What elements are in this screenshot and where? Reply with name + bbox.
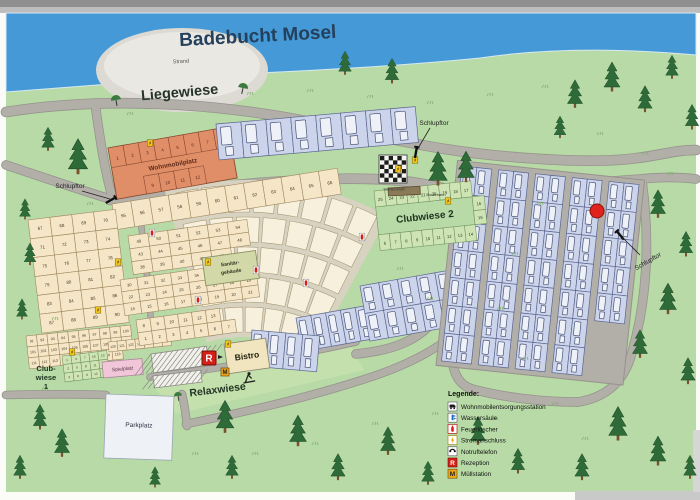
car-glyph <box>568 252 573 259</box>
fire-extinguisher-icon <box>303 279 309 287</box>
caravan-glyph <box>567 236 575 251</box>
car-glyph <box>275 142 283 151</box>
legend-item-label: Feuerlöscher <box>461 426 498 433</box>
car-glyph <box>547 250 552 257</box>
caravan-glyph <box>245 124 257 143</box>
pitch-number: 95 <box>71 335 75 339</box>
legend-waste-letter: M <box>450 471 455 478</box>
pitch-number: 104 <box>61 347 67 352</box>
caravan-glyph <box>530 232 538 247</box>
clubwiese1-label-line3: 1 <box>44 382 48 391</box>
pitch-number: 13 <box>101 353 105 357</box>
pitch-number: 113 <box>52 359 58 364</box>
caravan-glyph <box>270 335 279 354</box>
caravan-glyph <box>573 321 581 336</box>
caravan-glyph <box>537 318 545 333</box>
caravan-glyph <box>601 268 609 283</box>
car-glyph <box>523 332 528 339</box>
car-glyph <box>538 333 543 340</box>
caravan-glyph <box>485 312 493 327</box>
legend-item-label: Müllstation <box>461 471 492 478</box>
caravan-glyph <box>576 294 584 309</box>
outdoor-chessboard <box>379 155 407 183</box>
caravan-glyph <box>395 111 407 130</box>
caravan-glyph <box>482 340 490 355</box>
caravan-glyph <box>448 308 456 323</box>
car-glyph <box>520 360 525 367</box>
power-connection-icon <box>395 166 401 172</box>
car-glyph <box>388 299 395 307</box>
car-glyph <box>510 246 515 253</box>
waste-station-icon: M <box>448 469 457 478</box>
parkplatz-label: Parkplatz <box>125 422 152 430</box>
caravan-glyph <box>622 214 630 229</box>
legend-reception-letter: R <box>450 460 455 467</box>
car-glyph <box>271 356 277 365</box>
car-glyph <box>611 200 616 207</box>
caravan-glyph <box>511 202 519 217</box>
car-glyph <box>507 274 512 281</box>
car-glyph <box>250 144 258 153</box>
caravan-glyph <box>527 260 535 275</box>
fan-pitch-cell <box>259 248 281 275</box>
red-location-marker <box>590 204 604 218</box>
caravan-glyph <box>598 296 606 311</box>
fire-extinguisher-icon <box>359 233 365 241</box>
caravan-glyph <box>320 118 332 137</box>
pitch-number: 102 <box>40 349 46 354</box>
car-glyph <box>544 278 549 285</box>
scanned-campsite-map: 5556575859606162636465666768697071727374… <box>0 0 700 500</box>
legend-item: RRezeption <box>448 458 490 467</box>
car-glyph <box>495 244 500 251</box>
caravan-glyph <box>463 310 471 325</box>
car-glyph <box>501 330 506 337</box>
power-connection-icon <box>147 140 153 146</box>
pitch-number: 121 <box>119 344 125 349</box>
car-glyph <box>319 336 325 345</box>
pitch-number: 103 <box>51 348 57 353</box>
car-glyph <box>374 330 381 338</box>
caravan-glyph <box>579 266 587 281</box>
caravan-glyph <box>503 286 511 301</box>
caravan-glyph <box>454 253 462 268</box>
pitch-number: 92 <box>40 338 44 342</box>
fan-pitch-cell <box>245 307 263 333</box>
legend-item-label: Stromanschluss <box>461 438 506 445</box>
car-glyph <box>325 138 333 147</box>
car-glyph <box>577 309 582 316</box>
car-glyph <box>560 336 565 343</box>
caravan-glyph <box>500 314 508 329</box>
legend-item: Wohnmobilentsorgungsstation <box>448 402 546 411</box>
caravan-glyph <box>613 297 621 312</box>
car-glyph <box>425 292 432 300</box>
pitch-number: 93 <box>51 337 55 341</box>
caravan-glyph <box>548 206 556 221</box>
car-glyph <box>369 302 376 310</box>
caravan-glyph <box>525 288 533 303</box>
caravan-glyph <box>582 238 590 253</box>
legend-item: Stromanschluss <box>448 436 506 445</box>
boulebahn-label: Boulebahn <box>426 192 445 197</box>
car-glyph <box>483 356 488 363</box>
car-glyph <box>602 284 607 291</box>
caravan-glyph <box>616 270 624 285</box>
pitch-number: 94 <box>61 336 65 340</box>
caravan-glyph <box>497 342 505 357</box>
car-glyph <box>549 222 554 229</box>
legend-item-label: Notruftelefon <box>461 449 498 456</box>
car-glyph <box>526 304 531 311</box>
caravan-glyph <box>445 336 453 351</box>
car-glyph <box>411 323 418 331</box>
car-glyph <box>489 300 494 307</box>
car-glyph <box>504 302 509 309</box>
caravan-glyph <box>488 284 496 299</box>
car-glyph <box>492 272 497 279</box>
pitch-number: 101 <box>30 350 36 355</box>
caravan-glyph <box>573 181 581 196</box>
caravan-glyph <box>570 208 578 223</box>
car-glyph <box>552 194 557 201</box>
caravan-glyph <box>478 171 486 186</box>
car-glyph <box>563 308 568 315</box>
car-glyph <box>473 242 478 249</box>
caravan-glyph <box>220 126 232 145</box>
caravan-glyph <box>491 256 499 271</box>
car-glyph <box>288 357 294 366</box>
car-glyph <box>557 364 562 371</box>
caravan-glyph <box>295 120 307 139</box>
car-glyph <box>623 230 628 237</box>
car-glyph <box>305 359 311 368</box>
car-glyph <box>479 186 484 193</box>
car-glyph <box>334 333 340 342</box>
car-glyph <box>541 306 546 313</box>
legend-title: Legende: <box>448 391 479 398</box>
pitch-number: 106 <box>82 344 88 349</box>
caravan-glyph <box>536 177 544 192</box>
car-glyph <box>300 140 308 149</box>
car-glyph <box>498 357 503 364</box>
emergency-phone-icon <box>448 447 457 456</box>
legend-item-label: Wohnmobilentsorgungsstation <box>461 404 546 411</box>
caravan-glyph <box>558 320 566 335</box>
car-glyph <box>349 331 355 340</box>
legend-item: Notruftelefon <box>448 447 498 456</box>
caravan-glyph <box>534 345 542 360</box>
power-connection-icon <box>225 341 231 347</box>
pitch-number: 107 <box>92 343 98 348</box>
car-glyph <box>392 326 399 334</box>
reception-letter: R <box>205 354 213 365</box>
pitch-number: 96 <box>82 334 86 338</box>
power-connection-icon <box>205 259 211 265</box>
legend-item: Wassersäule <box>448 413 498 422</box>
car-glyph <box>617 285 622 292</box>
car-glyph <box>513 218 518 225</box>
caravan-glyph <box>619 242 627 257</box>
caravan-glyph <box>370 113 382 132</box>
car-glyph <box>350 135 358 144</box>
car-glyph <box>535 361 540 368</box>
pitch-number: 122 <box>128 343 134 348</box>
caravan-glyph <box>545 234 553 249</box>
campsite-map-canvas: 5556575859606162636465666768697071727374… <box>0 0 700 500</box>
power-connection-icon <box>95 307 101 313</box>
caravan-glyph <box>466 282 474 297</box>
caravan-glyph <box>561 292 569 307</box>
caravan-glyph <box>460 338 468 353</box>
caravan-glyph <box>610 185 618 200</box>
car-glyph <box>430 320 437 328</box>
legend-item-label: Wassersäule <box>461 415 498 422</box>
caravan-glyph <box>539 290 547 305</box>
caravan-glyph <box>551 178 559 193</box>
car-glyph <box>464 326 469 333</box>
fan-pitch-cell <box>261 218 286 245</box>
caravan-glyph <box>304 338 313 357</box>
reception-icon: R <box>448 458 457 467</box>
car-glyph <box>486 328 491 335</box>
caravan-glyph <box>345 115 357 134</box>
car-glyph <box>501 189 506 196</box>
car-glyph <box>516 190 521 197</box>
car-glyph <box>626 202 631 209</box>
car-glyph <box>535 220 540 227</box>
fire-extinguisher-icon <box>149 229 155 237</box>
power-connection-icon <box>448 436 457 445</box>
caravan-glyph <box>506 258 514 273</box>
car-glyph <box>449 324 454 331</box>
pitch-number: 100 <box>123 329 129 334</box>
power-connection-icon <box>69 349 75 355</box>
car-glyph <box>586 226 591 233</box>
caravan-glyph <box>494 229 502 244</box>
car-glyph <box>565 280 570 287</box>
pitch-number: 10 <box>92 354 96 358</box>
car-glyph <box>400 131 408 140</box>
car-glyph <box>537 193 542 200</box>
car-glyph <box>455 268 460 275</box>
fire-extinguisher-icon <box>448 424 457 433</box>
schlupftor-label-top: Schlupftor <box>419 120 449 127</box>
parkplatz-parking-lot: Parkplatz <box>104 394 174 460</box>
schachbrett-label: Schachbrett <box>383 187 405 192</box>
caravan-glyph <box>469 254 477 269</box>
clubwiese1-label-line1: Club- <box>36 364 56 373</box>
caravan-glyph <box>499 173 507 188</box>
car-glyph <box>580 282 585 289</box>
car-glyph <box>614 313 619 320</box>
caravan-glyph <box>451 280 459 295</box>
fire-extinguisher-icon <box>253 266 259 274</box>
caravan-glyph <box>270 122 282 141</box>
car-glyph <box>589 198 594 205</box>
caravan-glyph <box>533 205 541 220</box>
car-glyph <box>572 365 577 372</box>
caravan-glyph <box>625 186 633 201</box>
legend-item-label: Rezeption <box>461 460 490 467</box>
pitch-number: 12 <box>94 372 98 376</box>
waste-station-icon: M <box>221 368 229 376</box>
pitch-number: 99 <box>113 330 117 334</box>
car-glyph <box>375 133 383 142</box>
clubwiese1-label-line2: wiese <box>35 373 56 382</box>
caravan-glyph <box>508 230 516 245</box>
pitch-number: 97 <box>92 333 96 337</box>
car-glyph <box>452 296 457 303</box>
fire-extinguisher-icon <box>195 296 201 304</box>
pitch-number: 119 <box>115 352 121 357</box>
caravan-glyph <box>564 264 572 279</box>
caravan-glyph <box>287 337 296 356</box>
car-glyph <box>529 276 534 283</box>
car-glyph <box>461 353 466 360</box>
strand-label: Strand <box>173 59 190 66</box>
caravan-glyph <box>604 240 612 255</box>
caravan-glyph <box>542 262 550 277</box>
pitch-number: 98 <box>103 331 107 335</box>
car-glyph <box>605 256 610 263</box>
waste-letter: M <box>223 370 228 376</box>
caravan-glyph <box>519 344 527 359</box>
legend-item: Feuerlöscher <box>448 424 498 433</box>
legend-item: MMüllstation <box>448 469 492 478</box>
car-glyph <box>470 270 475 277</box>
car-glyph <box>608 228 613 235</box>
power-connection-icon <box>445 198 451 204</box>
power-connection-icon <box>115 259 121 265</box>
caravan-glyph <box>555 348 563 363</box>
caravan-glyph <box>570 349 578 364</box>
caravan-glyph <box>588 182 596 197</box>
car-glyph <box>467 298 472 305</box>
pitch-number: 120 <box>110 344 116 349</box>
water-column-icon <box>448 413 457 422</box>
car-glyph <box>620 258 625 265</box>
car-glyph <box>498 217 503 224</box>
car-glyph <box>575 337 580 344</box>
car-glyph <box>571 224 576 231</box>
car-glyph <box>532 248 537 255</box>
car-glyph <box>574 196 579 203</box>
caravan-glyph <box>497 201 505 216</box>
car-glyph <box>446 352 451 359</box>
camper-service-icon <box>448 402 457 411</box>
caravan-glyph <box>514 174 522 189</box>
car-glyph <box>406 296 413 304</box>
schlupftor-label-left: Schlupftor <box>55 183 85 190</box>
caravan-glyph <box>522 316 530 331</box>
car-glyph <box>583 254 588 261</box>
caravan-glyph <box>607 212 615 227</box>
pitch-number: 91 <box>30 339 34 343</box>
car-glyph <box>599 312 604 319</box>
zone-left-block: 6768697071727374757677787980818283848586… <box>28 209 129 333</box>
spielplatz-playground: Spielplatz <box>102 359 143 378</box>
car-glyph <box>226 146 234 155</box>
